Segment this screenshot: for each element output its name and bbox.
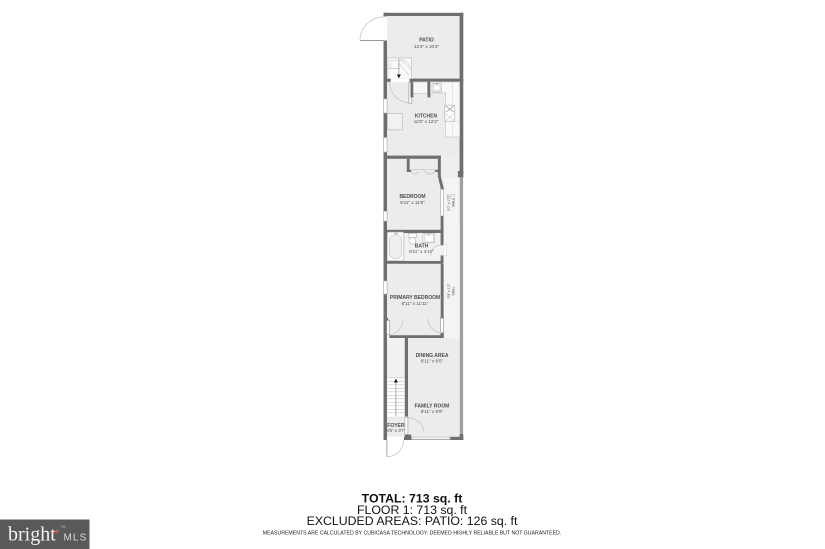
svg-text:8'11" x 11'11": 8'11" x 11'11" (402, 301, 429, 306)
svg-text:WALL: WALL (451, 286, 455, 295)
svg-text:PATIO: PATIO (419, 38, 434, 44)
svg-text:11'8" x 12'2": 11'8" x 12'2" (414, 119, 439, 124)
svg-text:2'0" x 17'7": 2'0" x 17'7" (447, 193, 451, 211)
svg-text:bright: bright (8, 524, 56, 546)
svg-text:3'9" x 1'2": 3'9" x 1'2" (447, 283, 451, 299)
svg-text:MLS: MLS (64, 533, 88, 544)
svg-text:WALL: WALL (451, 198, 455, 207)
svg-text:8'11" x 9'9": 8'11" x 9'9" (421, 409, 444, 414)
svg-text:12'3" x 10'3": 12'3" x 10'3" (414, 44, 440, 49)
svg-text:MEASUREMENTS ARE CALCULATED BY: MEASUREMENTS ARE CALCULATED BY CUBICASA … (263, 531, 561, 537)
svg-text:EXCLUDED AREAS: PATIO: 126 sq.: EXCLUDED AREAS: PATIO: 126 sq. ft (307, 514, 518, 528)
svg-text:TM: TM (61, 525, 66, 529)
svg-text:8'11" x 6'5": 8'11" x 6'5" (421, 358, 444, 363)
svg-text:3'0" x 3'7": 3'0" x 3'7" (386, 428, 406, 433)
svg-text:8'11" x 11'9": 8'11" x 11'9" (400, 200, 425, 205)
